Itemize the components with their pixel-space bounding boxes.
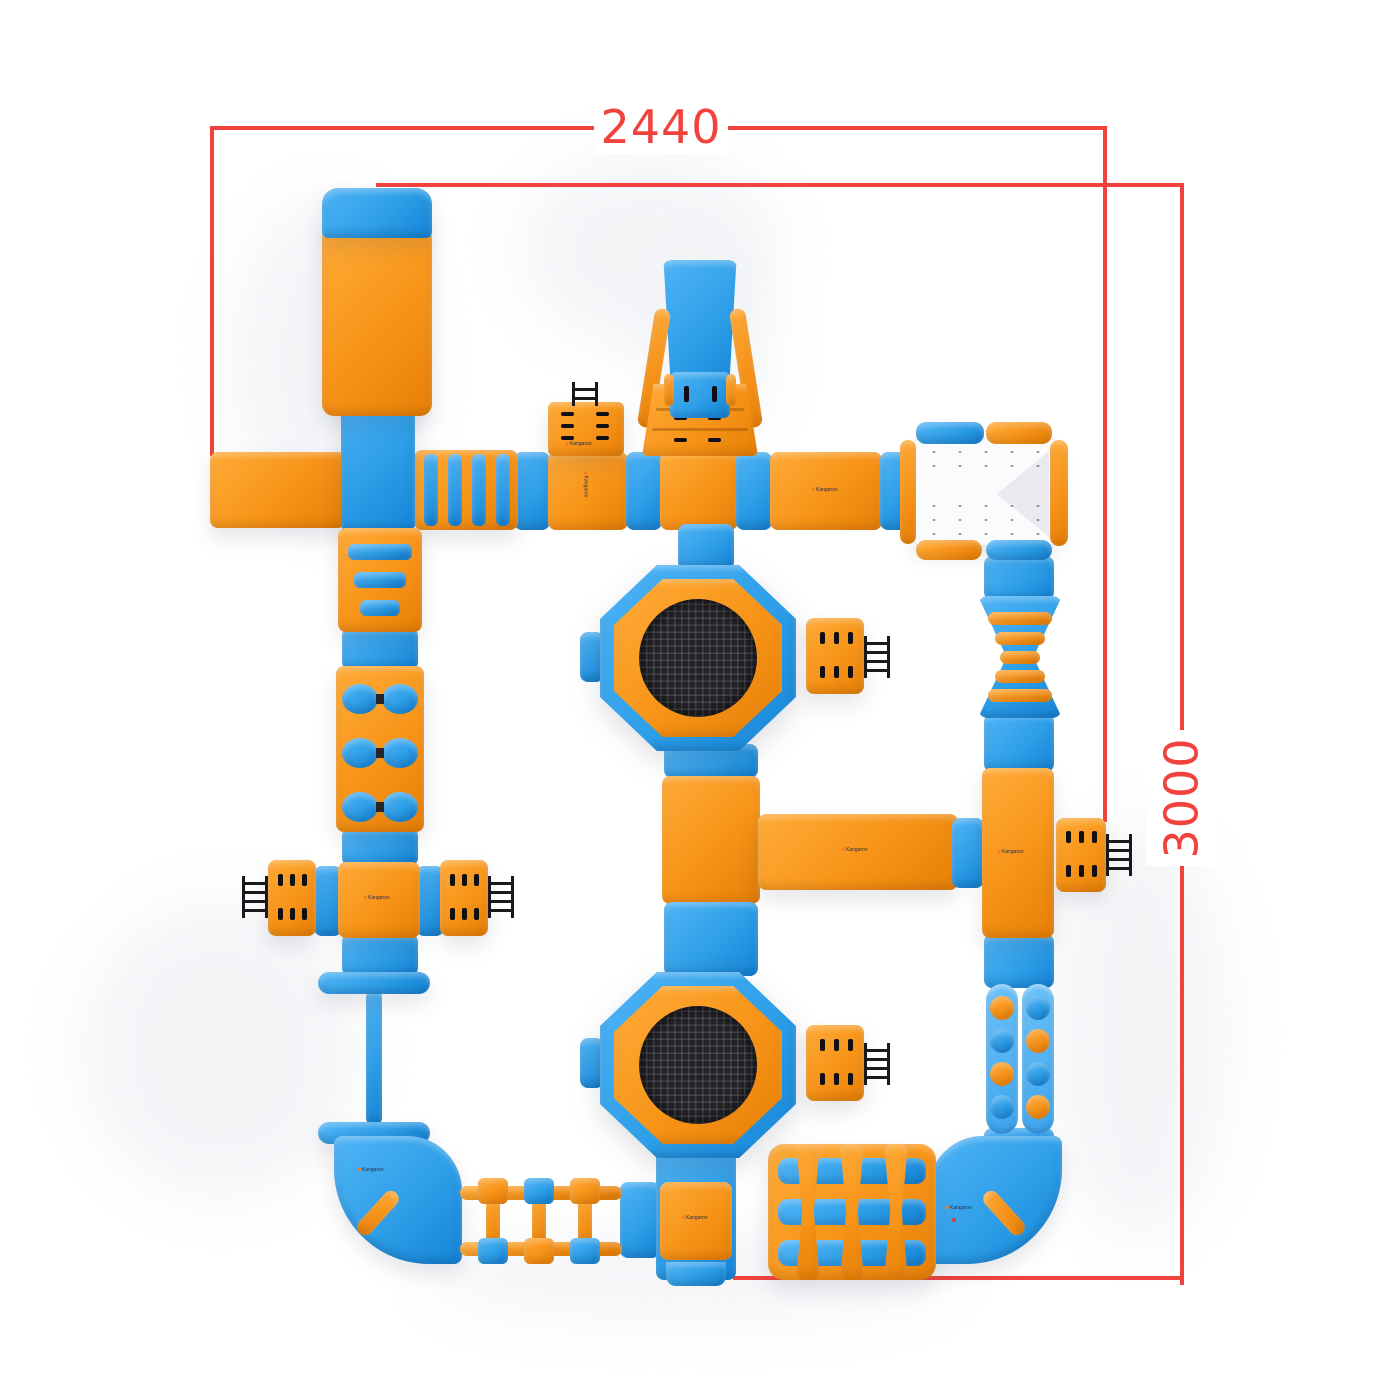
roller-bar bbox=[1000, 651, 1040, 664]
grip-dash-icon bbox=[834, 632, 839, 644]
platform-bumper-bottom-orange bbox=[916, 540, 982, 560]
height-value: 3000 bbox=[1155, 737, 1209, 858]
ladder-icon bbox=[864, 1043, 890, 1085]
rail-pad bbox=[570, 1178, 600, 1204]
grip-dash-icon bbox=[708, 438, 721, 442]
waterpark-layout-diagram: 2440 3000 bbox=[0, 0, 1400, 1400]
mid-beam-connector bbox=[952, 818, 984, 888]
platform-bumper-bottom-blue bbox=[986, 540, 1052, 560]
platform-bumper-top-orange bbox=[986, 422, 1052, 444]
ladder-icon bbox=[864, 636, 890, 678]
stepping-dot bbox=[1026, 1095, 1050, 1119]
grip-dash-icon bbox=[848, 1073, 853, 1085]
brand-logo: Kangaroo bbox=[946, 1206, 972, 1211]
grip-dash-icon bbox=[596, 424, 609, 428]
roller-cone bbox=[342, 684, 378, 714]
grip-dash-icon bbox=[1066, 865, 1071, 877]
entry-block bbox=[548, 402, 624, 456]
grip-dash-icon bbox=[848, 1039, 853, 1051]
brand-logo: Kangaroo bbox=[582, 472, 587, 498]
brand-logo-text: Kangaroo bbox=[582, 476, 588, 498]
right-path-segment bbox=[984, 934, 1054, 988]
grip-dash-icon bbox=[820, 1039, 825, 1051]
trampoline bbox=[600, 565, 796, 751]
grip-dash-icon bbox=[462, 874, 467, 886]
grip-dash-icon bbox=[462, 908, 467, 920]
ibeam-bar bbox=[366, 990, 382, 1126]
left-path-segment bbox=[342, 628, 418, 670]
roller-cone bbox=[342, 738, 378, 768]
cage-module bbox=[768, 1144, 936, 1280]
center-junction-block bbox=[662, 776, 760, 904]
walkway-connector bbox=[514, 452, 550, 530]
brand-logo-text: Kangaroo bbox=[686, 1215, 708, 1221]
platform-bumper-left bbox=[900, 440, 916, 544]
logo-dot bbox=[952, 1218, 956, 1222]
bottom-path-segment bbox=[620, 1182, 660, 1258]
grip-dash-icon bbox=[450, 908, 455, 920]
rail-pad bbox=[478, 1178, 508, 1204]
left-path-segment bbox=[342, 828, 418, 866]
brand-logo: Kangaroo bbox=[566, 442, 592, 447]
climb-block bbox=[440, 860, 488, 936]
rail-pad bbox=[524, 1178, 554, 1204]
ladder-icon bbox=[1106, 834, 1132, 876]
grip-dash-icon bbox=[302, 908, 307, 920]
platform-grip-pattern bbox=[921, 499, 1049, 539]
accordion-ridge bbox=[448, 454, 462, 526]
brand-logo: Kangaroo bbox=[364, 896, 390, 901]
brand-logo-text: Kangaroo bbox=[368, 895, 390, 901]
grip-dash-icon bbox=[290, 908, 295, 920]
accordion-ridge bbox=[472, 454, 486, 526]
ladder-icon bbox=[242, 876, 268, 918]
roller-cone bbox=[382, 684, 418, 714]
stepping-dot bbox=[1026, 1062, 1050, 1086]
stepping-dot bbox=[1026, 996, 1050, 1020]
grip-dash-icon bbox=[290, 874, 295, 886]
accordion-ridge bbox=[424, 454, 438, 526]
accordion-ridge bbox=[496, 454, 510, 526]
platform-mark bbox=[712, 386, 717, 402]
slide-tower-cap bbox=[322, 188, 432, 238]
grip-dash-icon bbox=[834, 666, 839, 678]
grip-dash-icon bbox=[674, 438, 687, 442]
roller-bar bbox=[995, 632, 1045, 645]
roller-section bbox=[336, 666, 424, 832]
grip-dash-icon bbox=[1079, 865, 1084, 877]
grip-dash-icon bbox=[834, 1073, 839, 1085]
step-ridge bbox=[360, 600, 400, 616]
grip-dash-icon bbox=[474, 908, 479, 920]
dimension-line-mid bbox=[376, 183, 1184, 187]
ibeam-top bbox=[318, 972, 430, 994]
grip-dash-icon bbox=[450, 874, 455, 886]
slide-handle bbox=[664, 374, 674, 406]
brand-logo-text: Kangaroo bbox=[950, 1205, 972, 1211]
slide-module bbox=[630, 255, 770, 465]
grip-dash-icon bbox=[848, 632, 853, 644]
brand-logo: Kangaroo bbox=[998, 850, 1024, 855]
trampoline-mesh bbox=[639, 1006, 757, 1124]
rail-pad bbox=[478, 1238, 508, 1264]
rail-pad bbox=[570, 1238, 600, 1264]
brand-logo: Kangaroo bbox=[682, 1216, 708, 1221]
slide-platform bbox=[670, 372, 730, 418]
brand-logo-text: Kangaroo bbox=[362, 1167, 384, 1173]
height-dimension-label: 3000 bbox=[1146, 730, 1218, 866]
grip-dash-icon bbox=[561, 436, 574, 440]
step-ridge bbox=[348, 544, 412, 560]
roller-bar bbox=[995, 670, 1045, 683]
bottom-square-tab bbox=[666, 1262, 726, 1286]
brand-logo: Kangaroo bbox=[812, 488, 838, 493]
grip-dash-icon bbox=[1092, 831, 1097, 843]
entrance-beam-left bbox=[210, 452, 346, 528]
climb-block bbox=[1056, 818, 1106, 892]
grip-dash-icon bbox=[820, 1073, 825, 1085]
stepping-dot bbox=[990, 1062, 1014, 1086]
platform-floor bbox=[914, 438, 1056, 546]
roller-cone bbox=[382, 792, 418, 822]
brand-logo: Kangaroo bbox=[358, 1168, 384, 1173]
roller-cone bbox=[342, 792, 378, 822]
climb-block bbox=[806, 1025, 864, 1101]
grip-dash-icon bbox=[561, 412, 574, 416]
grip-dash-icon bbox=[474, 874, 479, 886]
grip-dash-icon bbox=[596, 412, 609, 416]
slide-tower-body bbox=[322, 226, 432, 416]
brand-logo-text: Kangaroo bbox=[1002, 849, 1024, 855]
step-ridge bbox=[354, 572, 406, 588]
bottom-square bbox=[660, 1182, 732, 1260]
roller-gap bbox=[376, 802, 384, 812]
trampoline-connector bbox=[678, 524, 734, 570]
stepping-dot bbox=[990, 996, 1014, 1020]
grip-dash-icon bbox=[278, 874, 283, 886]
slide-handle bbox=[726, 374, 736, 406]
platform-bumper-right bbox=[1050, 440, 1068, 546]
hourglass-obstacle bbox=[978, 596, 1062, 718]
stepping-dot bbox=[990, 1029, 1014, 1053]
stepping-dot bbox=[990, 1095, 1014, 1119]
brand-logo: Kangaroo bbox=[842, 848, 868, 853]
dimension-extension-left bbox=[210, 126, 214, 456]
trampoline-mesh bbox=[639, 599, 757, 717]
brand-logo-text: Kangaroo bbox=[846, 847, 868, 853]
roller-gap bbox=[376, 748, 384, 758]
brand-logo-text: Kangaroo bbox=[816, 487, 838, 493]
climb-block bbox=[806, 618, 864, 694]
rail-pad bbox=[524, 1238, 554, 1264]
roller-bar bbox=[988, 689, 1052, 702]
roller-cone bbox=[382, 738, 418, 768]
grip-dash-icon bbox=[1079, 831, 1084, 843]
width-dimension-label: 2440 bbox=[594, 100, 728, 154]
grip-dash-icon bbox=[834, 1039, 839, 1051]
stepping-dot bbox=[1026, 1029, 1050, 1053]
center-connector bbox=[664, 902, 758, 976]
grip-dash-icon bbox=[848, 666, 853, 678]
platform-bumper-top-blue bbox=[916, 422, 984, 444]
wedge-steps bbox=[338, 528, 422, 632]
width-value: 2440 bbox=[600, 100, 721, 154]
shadow bbox=[80, 900, 360, 1200]
roller-bar bbox=[988, 612, 1052, 625]
grip-dash-icon bbox=[302, 874, 307, 886]
grip-dash-icon bbox=[820, 632, 825, 644]
grip-dash-icon bbox=[1092, 865, 1097, 877]
step-line bbox=[652, 428, 748, 431]
grip-dash-icon bbox=[278, 908, 283, 920]
grip-dash-icon bbox=[820, 666, 825, 678]
ladder-icon bbox=[488, 876, 514, 918]
dimension-extension-right bbox=[1103, 126, 1107, 822]
platform-mark bbox=[684, 386, 689, 402]
right-path-segment bbox=[984, 556, 1054, 600]
grip-dash-icon bbox=[561, 424, 574, 428]
grip-dash-icon bbox=[596, 436, 609, 440]
brand-logo-text: Kangaroo bbox=[570, 441, 592, 447]
climb-block bbox=[268, 860, 316, 936]
ladder-icon bbox=[572, 382, 598, 406]
accordion-bridge bbox=[414, 450, 518, 530]
platform-grip-pattern bbox=[921, 445, 1049, 471]
trampoline bbox=[600, 972, 796, 1158]
left-path-segment bbox=[342, 934, 418, 976]
right-path-segment bbox=[984, 714, 1054, 772]
grip-dash-icon bbox=[1066, 831, 1071, 843]
roller-gap bbox=[376, 694, 384, 704]
